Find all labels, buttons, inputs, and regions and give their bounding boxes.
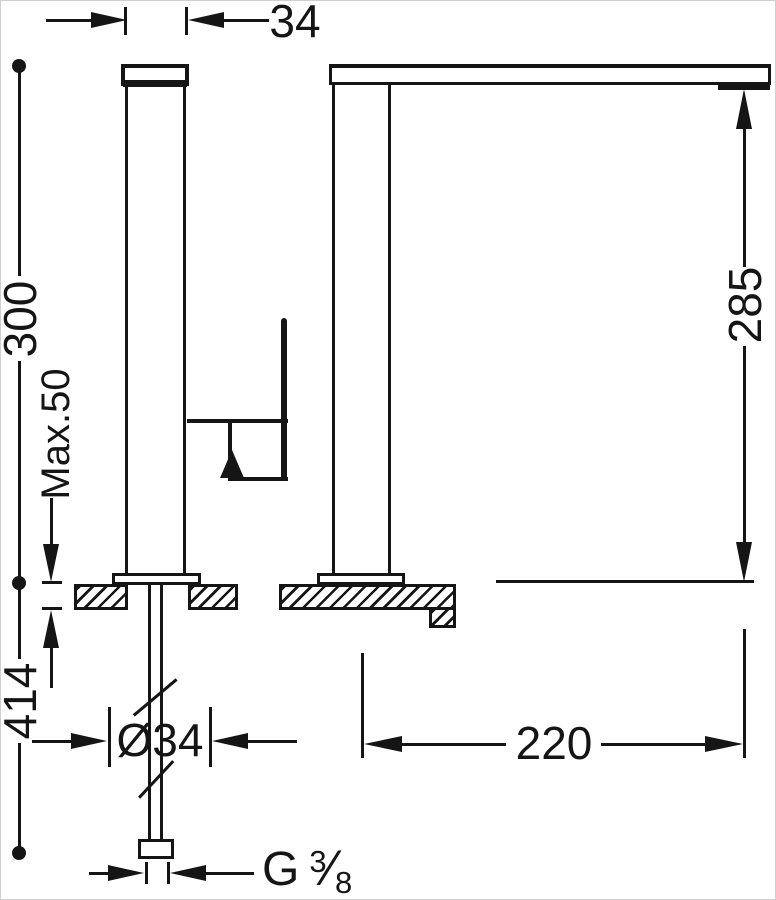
dim-220-label: 220 — [505, 721, 603, 765]
dim-220-line-left — [400, 743, 506, 746]
dim-300-line-upper — [18, 66, 21, 276]
dim-34-arrow-right — [188, 12, 224, 28]
dim-220-arrow-left — [364, 736, 402, 752]
dim-285-arrow-up — [736, 89, 752, 129]
thread-denominator: 8 — [335, 867, 352, 898]
dim-thread-line-left — [89, 872, 109, 875]
dim-285-ext-counter — [496, 580, 754, 583]
dim-300-line-lower — [18, 361, 21, 583]
dim-max50-line-upper — [50, 498, 53, 548]
dim-34-label: 34 — [263, 0, 327, 43]
hose-end-fitting — [138, 839, 174, 859]
dim-max50-label: Max.50 — [34, 349, 78, 519]
dim-414-dot-bottom — [12, 846, 26, 860]
thread-prefix: G — [262, 846, 299, 894]
technical-drawing-canvas: 34 300 Max.50 414 Ø34 — [0, 0, 776, 900]
dim-34-line-left — [46, 19, 91, 22]
dim-thread-arrow-right — [170, 865, 206, 881]
counter-hatch-side-lip — [429, 607, 456, 628]
hose-line-right — [160, 584, 163, 840]
side-body-column — [332, 85, 391, 574]
hose-break-slash-upper — [133, 678, 178, 716]
dim-thread-line-right — [206, 872, 254, 875]
handle-pivot-wedge — [220, 450, 244, 478]
dim-max50-tick-top — [42, 581, 62, 584]
dim-220-line-right — [601, 743, 705, 746]
dim-34-tick-left — [124, 7, 127, 35]
thread-slash-glyph: ⁄ — [327, 844, 335, 892]
dim-thread-label: G 3 ⁄ 8 — [262, 846, 352, 894]
dim-285-line-lower — [743, 346, 746, 544]
dim-34-line-right — [222, 19, 269, 22]
handle-housing-top-line — [187, 419, 288, 423]
dim-o34-line-left — [32, 740, 72, 743]
dim-34-arrow-left — [91, 12, 127, 28]
dim-414-line-lower — [18, 743, 21, 853]
dim-thread-arrow-left — [108, 865, 144, 881]
handle-lever — [281, 318, 287, 481]
dim-o34-arrow-left — [71, 733, 107, 749]
dim-max50-arrow-down — [43, 544, 59, 582]
dim-o34-arrow-right — [212, 733, 248, 749]
counter-hatch-front-left — [74, 584, 128, 610]
thread-numerator: 3 — [309, 846, 326, 877]
dim-max50-arrow-up — [43, 610, 59, 648]
dim-thread-tick-left — [145, 862, 148, 884]
front-body-column — [125, 85, 186, 574]
dim-220-arrow-right — [705, 736, 743, 752]
dim-220-ext-right — [743, 629, 746, 758]
spout-arm — [329, 64, 771, 85]
dim-285-arrow-down — [736, 542, 752, 582]
dim-max50-line-lower — [50, 646, 53, 688]
counter-hatch-front-right — [188, 584, 238, 610]
dim-o34-line-right — [248, 740, 297, 743]
dim-414-label: 414 — [0, 636, 42, 766]
hose-line-left — [148, 584, 151, 840]
dim-o34-label: Ø34 — [111, 718, 209, 762]
